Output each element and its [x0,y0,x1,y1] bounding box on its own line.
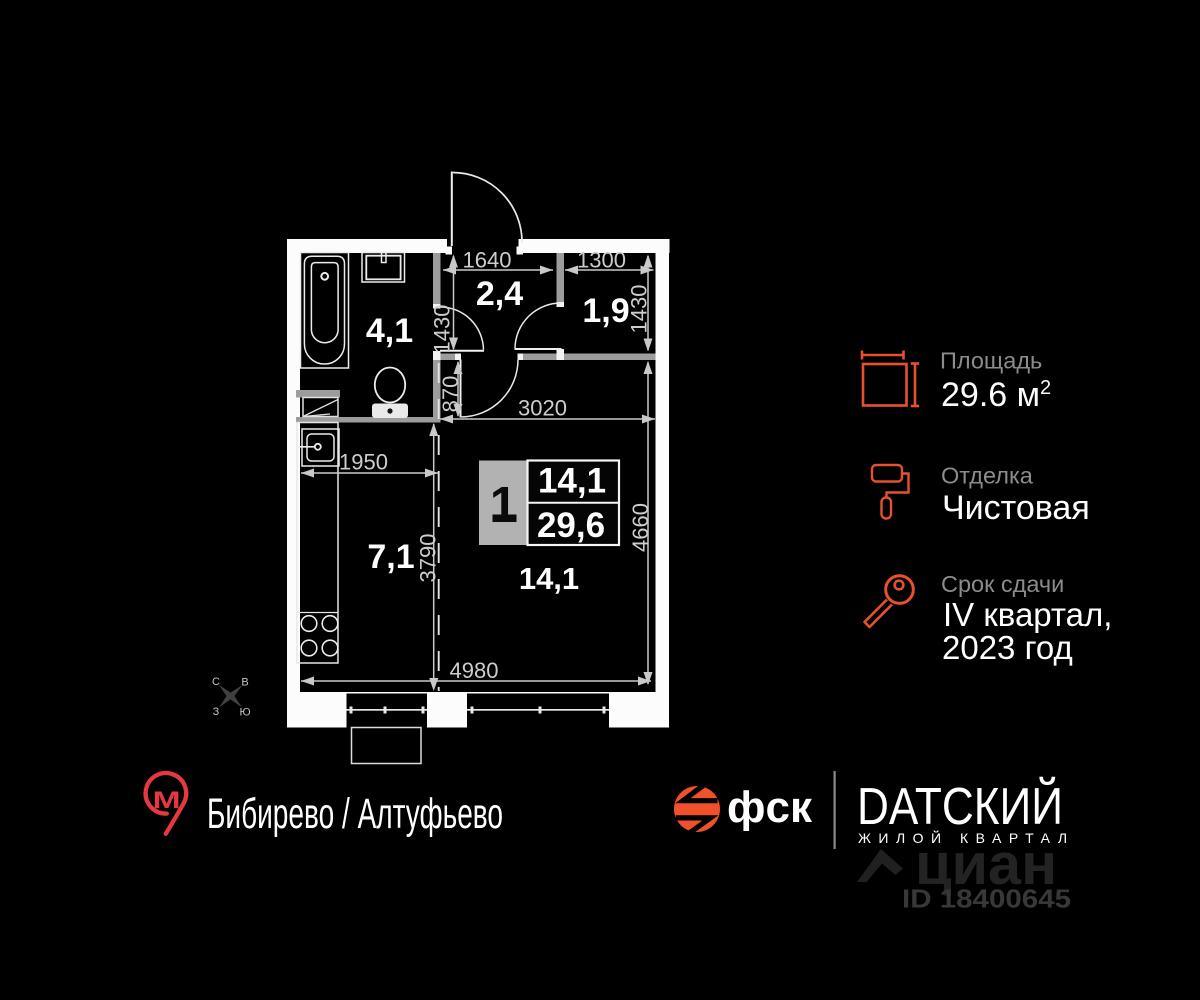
svg-text:1950: 1950 [339,450,388,475]
svg-text:3020: 3020 [518,396,567,421]
svg-text:870: 870 [438,376,463,413]
svg-text:ID 18400645: ID 18400645 [902,884,1071,914]
svg-text:Ю: Ю [239,707,250,719]
svg-text:2023 год: 2023 год [942,629,1073,666]
svg-text:1: 1 [490,478,517,532]
svg-text:3790: 3790 [416,534,441,583]
svg-text:Бибирево / Алтуфьево: Бибирево / Алтуфьево [207,790,503,838]
svg-text:7,1: 7,1 [367,538,414,576]
svg-text:29.6 м2: 29.6 м2 [941,376,1051,414]
svg-text:1430: 1430 [627,285,652,334]
svg-text:З: З [213,706,220,718]
svg-text:14,1: 14,1 [538,462,606,501]
svg-text:29,6: 29,6 [537,506,605,545]
svg-text:DАТСКИЙ: DАТСКИЙ [857,777,1063,836]
svg-text:С: С [212,676,220,688]
svg-text:В: В [241,677,248,689]
svg-text:4,1: 4,1 [366,312,413,350]
svg-text:4980: 4980 [450,658,499,683]
svg-text:Площадь: Площадь [940,348,1042,374]
svg-text:1,9: 1,9 [582,292,629,330]
svg-text:М: М [153,787,181,814]
svg-text:Срок сдачи: Срок сдачи [941,571,1064,597]
svg-text:фск: фск [727,783,813,832]
svg-text:1430: 1430 [430,305,455,354]
svg-text:2,4: 2,4 [476,275,523,313]
svg-text:1640: 1640 [463,248,512,273]
svg-text:14,1: 14,1 [519,561,579,596]
svg-text:IV квартал,: IV квартал, [943,596,1112,633]
svg-text:Отделка: Отделка [941,463,1034,489]
svg-text:4660: 4660 [628,503,653,552]
svg-text:1300: 1300 [577,248,626,273]
svg-text:Чистовая: Чистовая [942,489,1090,527]
